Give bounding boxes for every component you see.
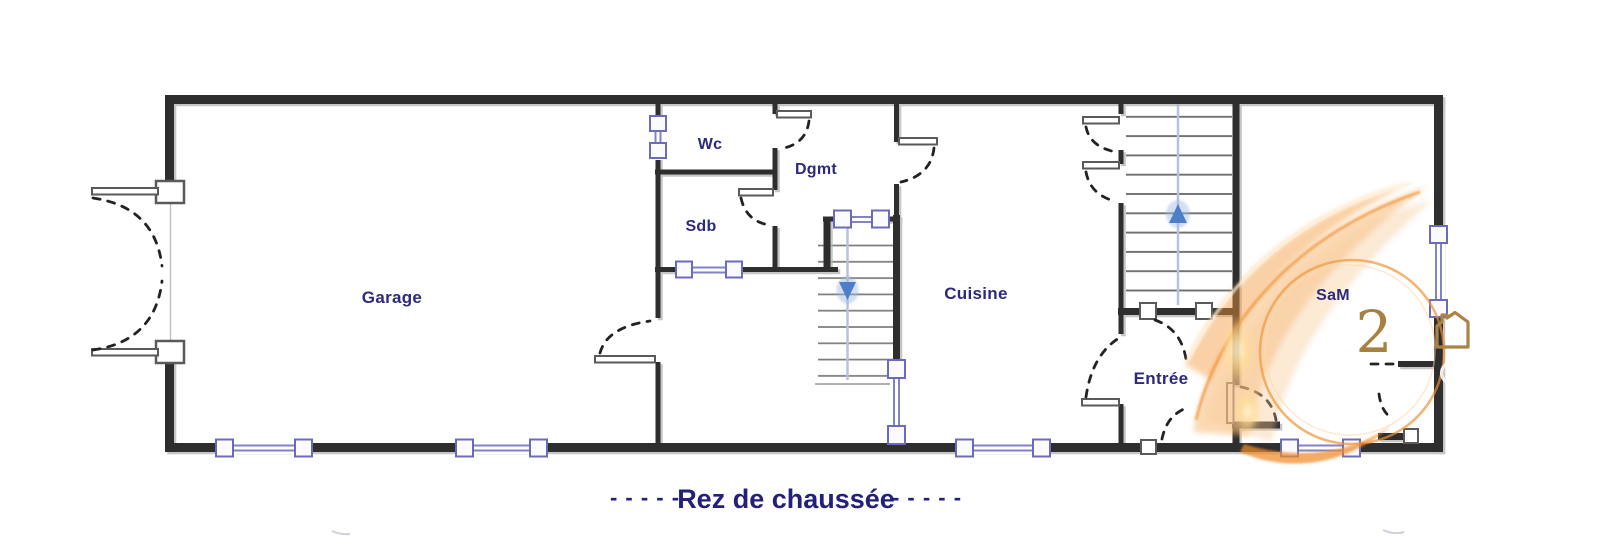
garage-door-leaf-top	[92, 188, 158, 195]
room-label-sdb: Sdb	[685, 218, 716, 235]
cuisine-door-leaf	[899, 138, 937, 145]
room-label-garage: Garage	[362, 288, 422, 307]
window-garage-bottom-1	[216, 440, 312, 457]
glass-partition-cuisine	[888, 360, 905, 444]
sdb-door-leaf	[739, 189, 773, 196]
entree-cuisine-door-leaf	[1082, 399, 1119, 406]
sam-closet-post	[1404, 429, 1418, 443]
window-wc	[650, 116, 666, 160]
garage-hall-door-leaf	[595, 356, 655, 363]
stairs-bottom-post-right	[1196, 303, 1212, 319]
hall-door-leaf-1	[1083, 117, 1119, 124]
room-label-entree: Entrée	[1134, 369, 1189, 388]
caption-dashes-right: - - - - -	[892, 485, 962, 510]
caption-dashes-left: - - - - -	[610, 485, 680, 510]
floor-caption: - - - - - Rez de chaussée - - - - -	[610, 484, 962, 514]
room-label-wc: Wc	[698, 136, 723, 153]
entree-bottom-post	[1141, 440, 1156, 454]
window-stairs-middle	[834, 211, 890, 228]
room-label-dgmt: Dgmt	[795, 161, 837, 178]
stairs-up-arrow-icon	[1166, 200, 1190, 228]
room-label-sam: SaM	[1316, 287, 1350, 304]
window-sam-right	[1430, 226, 1447, 317]
window-sdb	[676, 262, 742, 278]
watermark-number: 2	[1356, 298, 1393, 366]
floor-title: Rez de chaussée	[677, 484, 895, 514]
window-garage-bottom-2	[456, 440, 547, 457]
garage-door-leaf-bottom	[92, 349, 158, 356]
window-cuisine-bottom	[956, 440, 1050, 457]
floorplan-page: 2 Garage Wc Sdb Dgmt Cuisine Entrée SaM …	[0, 0, 1600, 537]
stairs-down-arrow-icon	[837, 276, 859, 304]
room-label-cuisine: Cuisine	[944, 284, 1008, 303]
wc-door-leaf	[777, 111, 811, 118]
floorplan-drawing: 2 Garage Wc Sdb Dgmt Cuisine Entrée SaM …	[0, 0, 1600, 537]
garage-door-post-top	[156, 181, 184, 203]
garage-door-post-bottom	[156, 341, 184, 363]
hall-door-leaf-2	[1083, 162, 1119, 169]
stairs-bottom-post-left	[1140, 303, 1156, 319]
